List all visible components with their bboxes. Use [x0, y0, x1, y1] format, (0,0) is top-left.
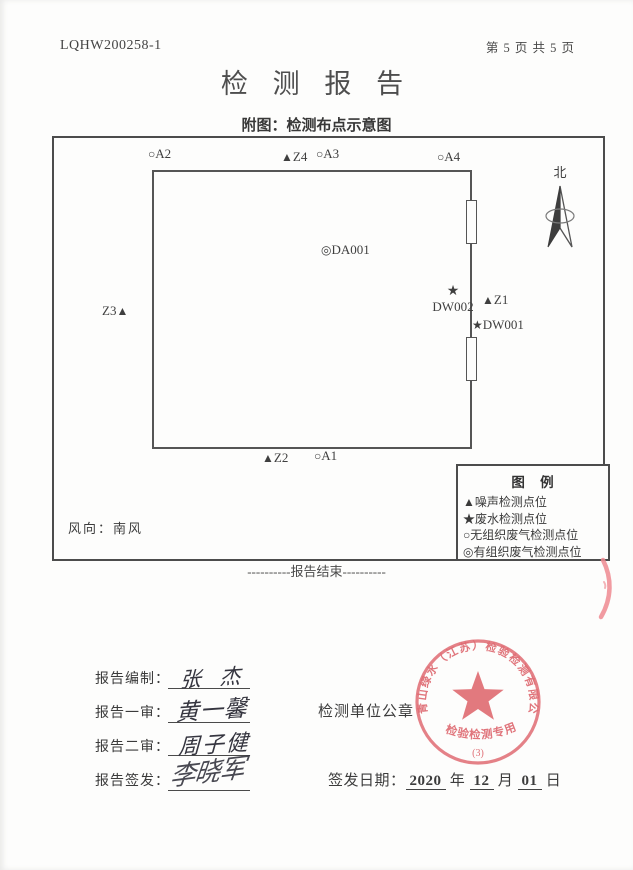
point-label: Z3	[102, 303, 116, 318]
legend-item-fugitive-gas: ○无组织废气检测点位	[463, 527, 608, 544]
point-Z1: ▲Z1	[482, 292, 508, 308]
north-indicator: 北	[536, 162, 584, 256]
point-A1: ○A1	[314, 448, 337, 464]
point-label: A1	[321, 448, 337, 463]
point-Z4: ▲Z4	[281, 149, 307, 165]
label-official-seal: 检测单位公章	[318, 700, 414, 721]
seal-number: (3)	[472, 748, 484, 759]
point-label: Z1	[494, 292, 508, 307]
point-label: Z2	[274, 450, 288, 465]
point-DW001: ★DW001	[472, 317, 524, 333]
label-second-review: 报告二审：	[95, 736, 170, 756]
issue-day: 01	[518, 773, 542, 790]
issue-month: 12	[470, 773, 494, 790]
point-A3: ○A3	[316, 146, 339, 162]
diagram-caption: 附图：检测布点示意图	[0, 114, 633, 135]
year-unit: 年	[450, 773, 466, 789]
triangle-icon: ▲	[281, 150, 293, 164]
point-label: A2	[155, 146, 171, 161]
label-report-prepared-by: 报告编制：	[95, 668, 170, 688]
point-A2: ○A2	[148, 146, 171, 162]
point-label: DA001	[331, 242, 369, 257]
point-A4: ○A4	[437, 149, 460, 165]
north-label: 北	[536, 162, 584, 181]
triangle-icon: ▲	[482, 293, 494, 307]
page-number: 第 5 页 共 5 页	[486, 37, 575, 56]
issue-date-label: 签发日期：	[328, 773, 406, 789]
legend-item-wastewater: ★废水检测点位	[463, 511, 608, 528]
signature-first-reviewer: 黄一馨	[175, 688, 248, 727]
point-label: A3	[323, 146, 339, 161]
company-seal: 青山绿水（江苏）检验检测有限公司 检验检测专用章 (3)	[412, 636, 544, 768]
issue-date-row: 签发日期：2020 年 12 月 01 日	[328, 769, 561, 790]
report-code: LQHW200258-1	[60, 38, 162, 54]
diagram-frame: ○A2 ▲Z4 ○A3 ○A4 ◎DA001 Z3▲ ★DW002 ▲Z1 ★D…	[52, 136, 605, 561]
door-top	[466, 200, 477, 244]
point-Z2: ▲Z2	[262, 450, 288, 466]
report-end-marker: ----------报告结束----------	[0, 561, 633, 580]
star-icon: ★	[422, 284, 484, 299]
label-first-review: 报告一审：	[95, 702, 170, 722]
legend-title: 图 例	[463, 471, 608, 491]
point-label: DW001	[483, 317, 524, 332]
legend-box: 图 例 ▲噪声检测点位 ★废水检测点位 ○无组织废气检测点位 ◎有组织废气检测点…	[456, 464, 610, 561]
point-Z3: Z3▲	[102, 303, 128, 319]
compass-arrow-icon	[536, 183, 584, 251]
seal-star-icon	[452, 671, 503, 720]
day-unit: 日	[546, 773, 562, 789]
page-title: 检 测 报 告	[0, 62, 633, 101]
wind-direction-label: 风向：南风	[68, 518, 143, 537]
door-bottom	[466, 337, 477, 381]
point-DA001: ◎DA001	[321, 242, 370, 258]
issue-year: 2020	[406, 773, 446, 790]
double-circle-icon: ◎	[321, 243, 331, 257]
stray-seal-arc	[580, 550, 620, 625]
month-unit: 月	[498, 773, 514, 789]
label-issued-by: 报告签发：	[95, 770, 170, 790]
report-page: LQHW200258-1 第 5 页 共 5 页 检 测 报 告 附图：检测布点…	[0, 0, 633, 870]
point-label: DW002	[432, 299, 473, 314]
triangle-icon: ▲	[262, 451, 274, 465]
point-label: Z4	[293, 149, 307, 164]
point-DW002: ★DW002	[422, 284, 484, 314]
legend-item-noise: ▲噪声检测点位	[463, 494, 608, 511]
star-icon: ★	[472, 318, 483, 332]
point-label: A4	[444, 149, 460, 164]
triangle-icon: ▲	[116, 304, 128, 318]
